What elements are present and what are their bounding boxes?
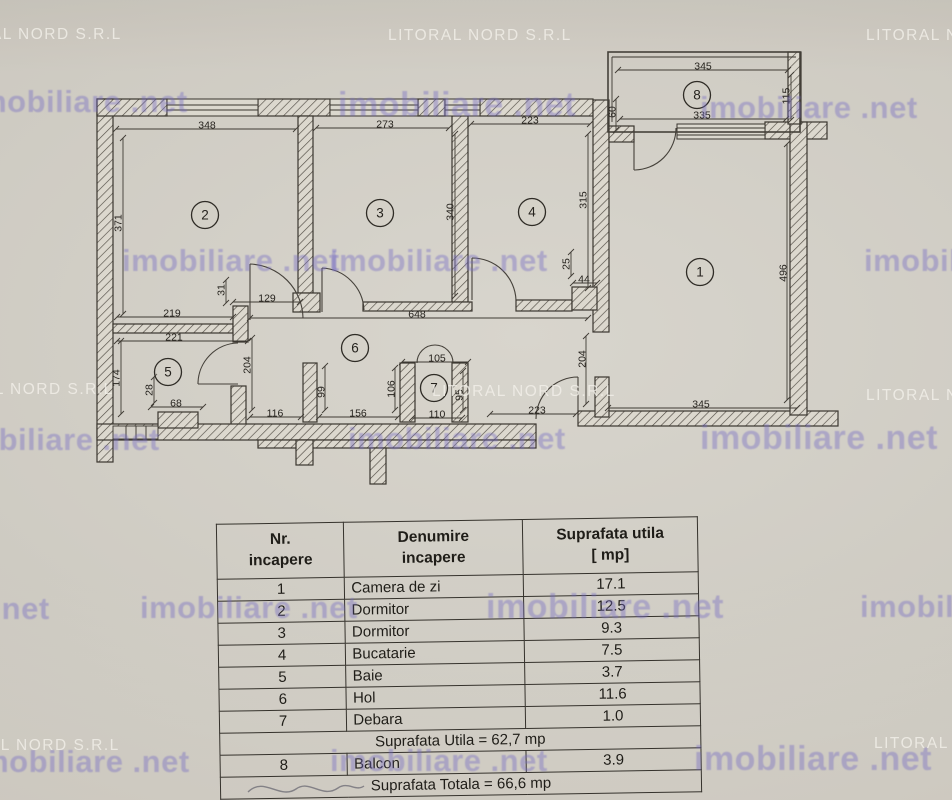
dimension: 345 xyxy=(605,399,800,412)
cell-area: 1.0 xyxy=(525,704,700,729)
wall-entry-pier xyxy=(595,377,609,417)
wall-stub-below xyxy=(370,448,386,484)
dimension-label: 315 xyxy=(578,191,590,209)
plan-element xyxy=(113,426,158,439)
dimension: 219 xyxy=(114,308,236,321)
header-area: Suprafata utila [ mp] xyxy=(522,517,698,575)
window xyxy=(330,99,418,116)
wall-pier xyxy=(233,306,248,342)
door-room3 xyxy=(322,268,364,312)
door-room4 xyxy=(472,258,516,300)
dimension-label: 345 xyxy=(694,61,712,73)
dimension-label: 68 xyxy=(170,398,182,410)
cell-name: Dormitor xyxy=(345,596,524,621)
wall-room4-bottom xyxy=(516,300,572,311)
window xyxy=(167,99,258,116)
floor-plan-photo: 3482732233453351156037134031531129219648… xyxy=(0,0,952,800)
dimension-label: 204 xyxy=(242,356,254,374)
room-number-2: 2 xyxy=(192,202,219,229)
cell-name: Baie xyxy=(346,662,525,687)
cell-area: 12.5 xyxy=(524,594,699,619)
cell-area: 9.3 xyxy=(524,616,699,641)
dimension-label: 340 xyxy=(445,203,457,221)
dimension-label: 31 xyxy=(216,284,228,296)
cell-nr: 4 xyxy=(218,643,346,667)
dimension-label: 115 xyxy=(781,87,793,104)
cell-nr: 8 xyxy=(220,753,348,777)
dimension-label: 95 xyxy=(454,389,466,401)
dimension: 223 xyxy=(487,405,579,418)
dimension: 106 xyxy=(386,365,399,413)
dimension-label: 116 xyxy=(267,408,284,420)
walls xyxy=(97,52,838,484)
dimension-label: 105 xyxy=(428,353,446,365)
wall-debara-left xyxy=(400,363,415,422)
dimension-label: 156 xyxy=(349,408,367,420)
dimension: 156 xyxy=(316,408,401,421)
wall-outer-left xyxy=(97,99,113,462)
cell-nr: 6 xyxy=(219,687,347,711)
dimension: 371 xyxy=(113,135,127,317)
dimension-label: 273 xyxy=(376,119,394,131)
area-table: Nr. incapere Denumire incapere Suprafata… xyxy=(216,516,702,800)
room-number-label: 3 xyxy=(376,206,384,221)
wall-room2-3 xyxy=(298,116,313,293)
room-number-label: 1 xyxy=(696,265,704,280)
dimension: 31 xyxy=(216,277,230,306)
wall-room1-right xyxy=(790,122,807,415)
area-table-head: Nr. incapere Denumire incapere Suprafata… xyxy=(216,517,698,580)
dimension-label: 174 xyxy=(111,369,123,387)
cell-nr: 5 xyxy=(219,665,347,689)
dimension-label: 204 xyxy=(577,350,589,368)
dimension: 348 xyxy=(113,120,299,133)
cell-area: 11.6 xyxy=(525,682,700,707)
door-balcony xyxy=(634,128,676,170)
header-nr: Nr. incapere xyxy=(216,522,344,579)
dimension: 335 xyxy=(617,110,789,123)
dimension-label: 371 xyxy=(113,214,125,232)
window xyxy=(445,99,480,116)
wall-jamb xyxy=(609,126,634,142)
wall-stub xyxy=(572,287,597,310)
dimension-label: 106 xyxy=(386,380,398,398)
cell-nr: 2 xyxy=(218,599,346,623)
dimension-label: 60 xyxy=(607,106,619,118)
cell-name: Camera de zi xyxy=(345,574,524,599)
dimension-label: 496 xyxy=(778,264,790,282)
door-bath xyxy=(198,343,238,384)
dimension: 345 xyxy=(615,61,791,74)
area-table-wrap: Nr. incapere Denumire incapere Suprafata… xyxy=(216,516,702,800)
room-number-3: 3 xyxy=(367,200,394,227)
dimension-label: 221 xyxy=(165,332,183,344)
dimension-label: 648 xyxy=(408,309,426,321)
dimension-label: 345 xyxy=(692,399,710,411)
room-number-label: 2 xyxy=(201,208,209,223)
room-number-label: 7 xyxy=(430,381,438,396)
cell-name: Hol xyxy=(346,684,525,709)
room-number-label: 5 xyxy=(164,365,172,380)
dimension-label: 44 xyxy=(578,274,590,286)
room-number-label: 6 xyxy=(351,341,359,356)
dimension-label: 28 xyxy=(144,384,156,396)
wall-bath-block xyxy=(158,412,198,428)
entrance-steps xyxy=(113,426,158,439)
cell-nr: 7 xyxy=(219,709,347,733)
dimension: 315 xyxy=(578,131,592,291)
cell-name: Bucatarie xyxy=(346,640,525,665)
room-number-4: 4 xyxy=(519,199,546,226)
cell-nr: 3 xyxy=(218,621,346,645)
dimension: 116 xyxy=(247,408,304,421)
wall-room2-3-end xyxy=(293,293,320,312)
cell-area: 3.7 xyxy=(525,660,700,685)
dimension-label: 335 xyxy=(693,110,711,122)
cell-name: Debara xyxy=(347,706,526,731)
dimension-label: 129 xyxy=(258,293,276,305)
room-number-label: 4 xyxy=(528,205,536,220)
header-name: Denumire incapere xyxy=(344,519,524,577)
room-number-label: 8 xyxy=(693,88,701,103)
cell-area: 3.9 xyxy=(526,748,701,773)
room-number-6: 6 xyxy=(342,335,369,362)
room-number-7: 7 xyxy=(421,375,448,402)
dimension: 28 xyxy=(144,374,158,406)
dimension-label: 223 xyxy=(521,115,539,127)
dimension-label: 110 xyxy=(429,409,446,421)
wall-top xyxy=(418,99,445,116)
cell-area: 17.1 xyxy=(523,572,698,597)
room-number-1: 1 xyxy=(687,259,714,286)
dimension-label: 348 xyxy=(198,120,216,132)
dimension: 496 xyxy=(778,141,791,403)
dimension: 273 xyxy=(313,119,452,132)
room-number-5: 5 xyxy=(155,359,182,386)
wall-top xyxy=(480,99,593,116)
wall-bath-right xyxy=(231,386,246,428)
cell-nr: 1 xyxy=(217,577,345,601)
dimension: 68 xyxy=(148,398,206,411)
dimension: 129 xyxy=(230,293,303,306)
dimension-label: 25 xyxy=(561,258,573,270)
dimension: 25 xyxy=(561,249,575,279)
dimension-label: 223 xyxy=(528,405,546,417)
wall-top xyxy=(258,99,330,116)
header-row: Nr. incapere Denumire incapere Suprafata… xyxy=(216,517,698,580)
room-number-8: 8 xyxy=(684,82,711,109)
dimension-label: 219 xyxy=(163,308,181,320)
cell-name: Balcon xyxy=(347,750,526,775)
wall-top xyxy=(97,99,167,116)
cell-area: 7.5 xyxy=(524,638,699,663)
cell-name: Dormitor xyxy=(345,618,524,643)
wall-stub-below xyxy=(296,440,313,465)
dimension-label: 99 xyxy=(316,386,328,398)
area-table-body: 1Camera de zi17.12Dormitor12.53Dormitor9… xyxy=(217,572,701,800)
